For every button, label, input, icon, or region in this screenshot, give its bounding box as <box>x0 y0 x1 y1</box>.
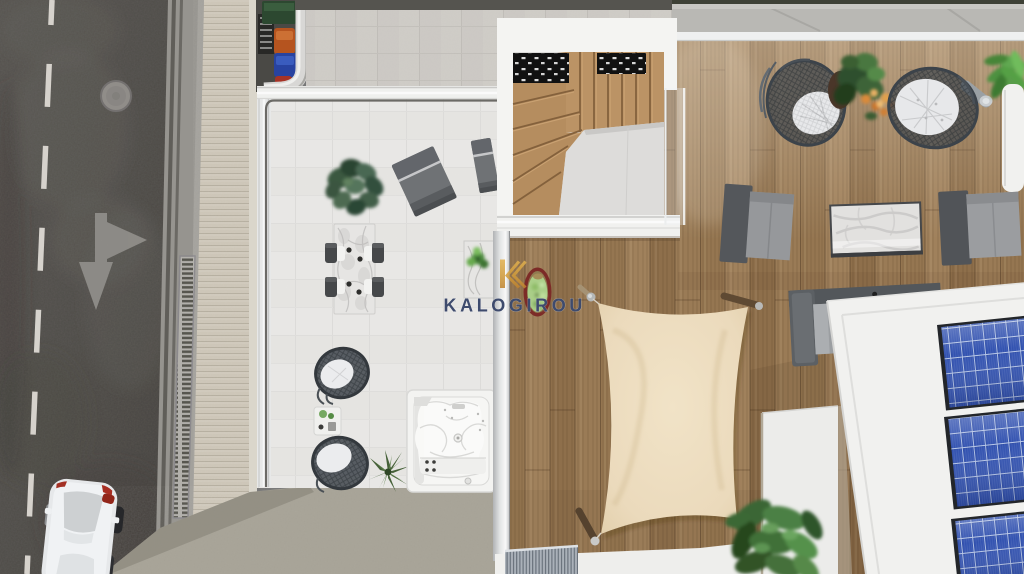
svg-text:KALOGIROU: KALOGIROU <box>444 296 586 316</box>
